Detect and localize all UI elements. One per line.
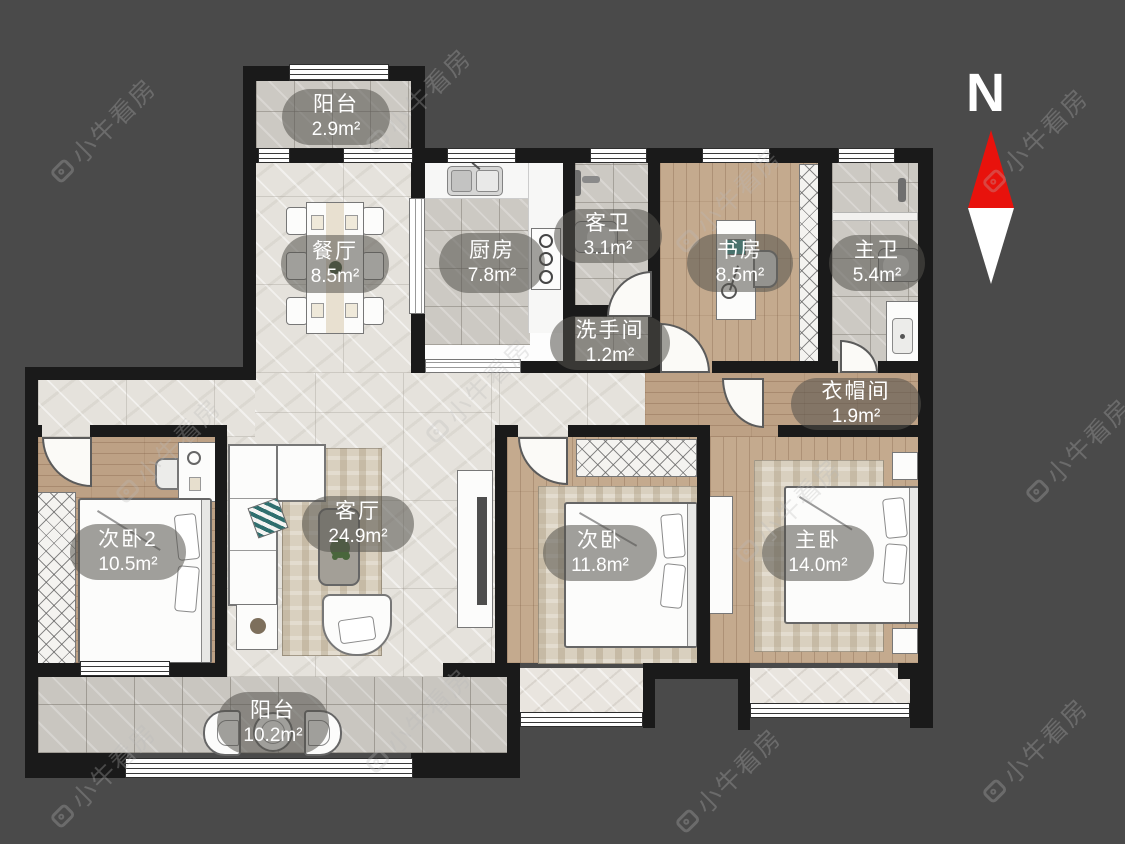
wall [643,663,655,728]
watermark: 小牛看房 [42,45,188,191]
watermark: 小牛看房 [974,665,1120,811]
room-label-kitchen: 厨房 7.8m² [439,233,545,293]
wall [918,148,933,678]
wardrobe [32,492,76,664]
compass-n-label: N [966,62,1005,124]
bed [78,498,212,664]
wall [878,361,933,373]
watermark-logo-icon [49,157,76,184]
room-label-guest-bath: 客卫 3.1m² [554,209,662,263]
bay-window-sill-bedroom [520,668,643,712]
pillow [882,497,908,539]
pillow [660,563,686,609]
wall [697,430,710,675]
room-label-dining: 餐厅 8.5m² [281,235,389,293]
pillow [660,513,686,559]
place-setting [311,215,324,230]
wall [910,663,933,728]
room-label-cloakroom: 衣帽间 1.9m² [791,378,921,430]
room-label-master-bath: 主卫 5.4m² [829,235,925,291]
kitchen-sink-icon [447,166,503,196]
headboard [201,500,210,662]
room-label-bedroom2: 次卧2 10.5m² [70,524,186,580]
shower-faucet-icon [898,178,906,202]
window [258,148,290,163]
wall [495,663,520,677]
wall [507,663,520,760]
watermark: 小牛看房 [1017,365,1125,511]
watermark-logo-icon [49,802,76,829]
wall [712,361,838,373]
wall [243,66,256,380]
bay-window [520,712,643,727]
wall [215,425,227,675]
window [289,64,389,81]
dining-chair [286,297,308,325]
headboard [687,504,696,646]
dining-chair [362,207,384,235]
nightstand [892,452,918,480]
dining-chair [362,297,384,325]
headboard [909,488,918,622]
wall [568,425,710,437]
pillow [174,565,200,613]
shower-arm-icon [582,176,600,183]
compass-arrow-south [968,208,1014,284]
wall [411,753,520,778]
wall [495,425,507,675]
watermark-logo-icon [674,807,701,834]
side-table [236,604,278,650]
wall [25,425,42,437]
nightstand [892,628,918,654]
window [838,148,895,163]
place-setting [345,215,358,230]
room-label-washroom: 洗手间 1.2m² [550,316,670,370]
bay-window-sill-master [750,668,910,703]
watermark-logo-icon [1024,477,1051,504]
window [590,148,647,163]
bookshelf [799,164,820,364]
wall [643,663,750,679]
pillow [882,543,907,585]
shower-divider [832,212,918,221]
window [80,661,170,676]
dining-chair [286,207,308,235]
window [447,148,516,163]
place-setting [311,303,324,318]
room-label-balcony-bottom: 阳台 10.2m² [217,692,329,754]
floor-plan: 阳台 2.9m² 餐厅 8.5m² 厨房 7.8m² 客卫 3.1m² 洗手间 … [0,0,1125,844]
wall [738,668,750,730]
sliding-door-kitchen [409,198,425,314]
tv-icon [477,497,487,605]
wardrobe [576,439,697,477]
room-label-living: 客厅 24.9m² [302,496,414,552]
watermark-logo-icon [981,777,1008,804]
tv-console [457,470,493,628]
room-label-bedroom: 次卧 11.8m² [543,525,657,581]
place-setting [345,303,358,318]
